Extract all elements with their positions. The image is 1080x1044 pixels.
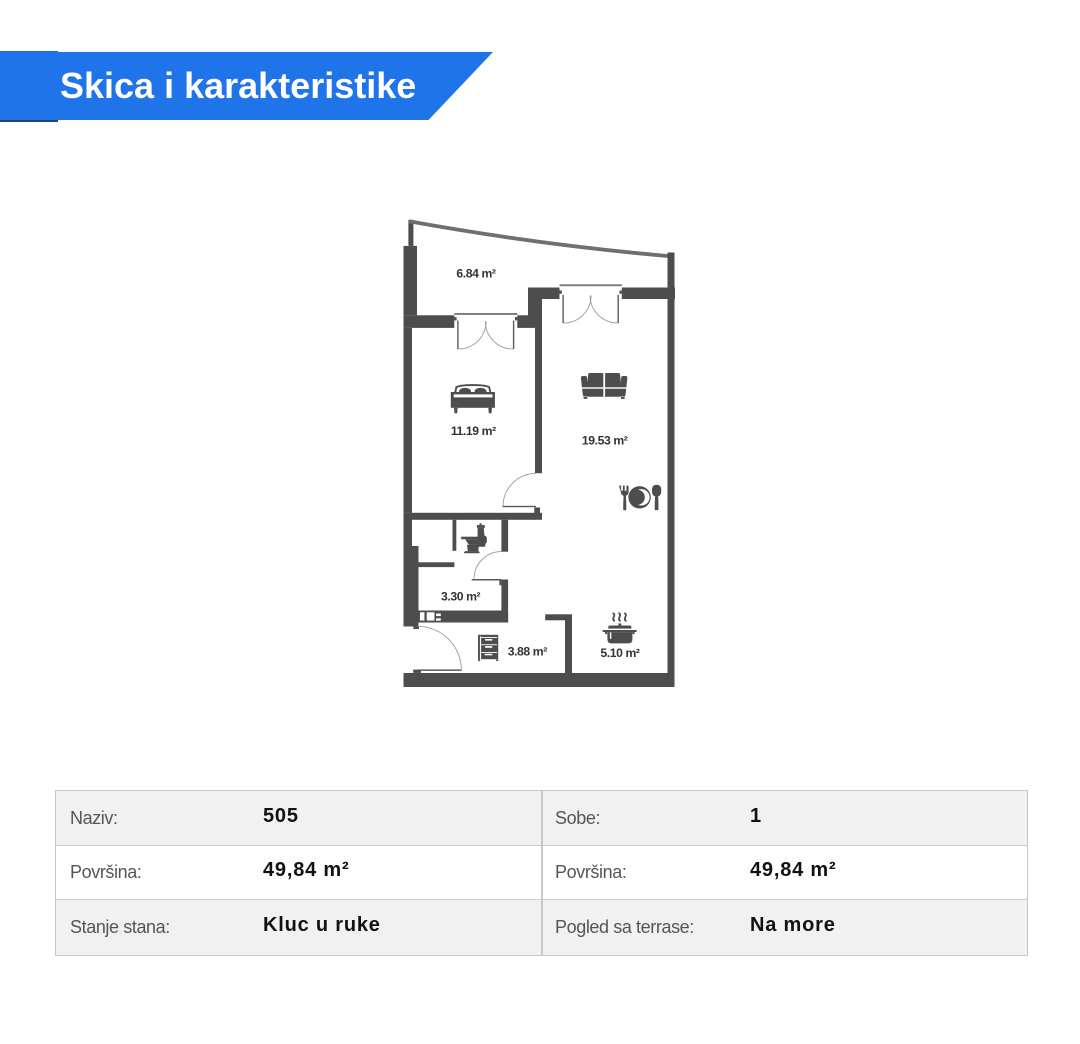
svg-text:5.10 m²: 5.10 m² (600, 646, 640, 660)
svg-text:19.53 m²: 19.53 m² (582, 434, 628, 448)
svg-text:11.19 m²: 11.19 m² (451, 424, 496, 438)
svg-text:6.84 m²: 6.84 m² (456, 266, 496, 280)
svg-text:3.30 m²: 3.30 m² (441, 589, 481, 603)
svg-text:3.88 m²: 3.88 m² (508, 644, 548, 658)
